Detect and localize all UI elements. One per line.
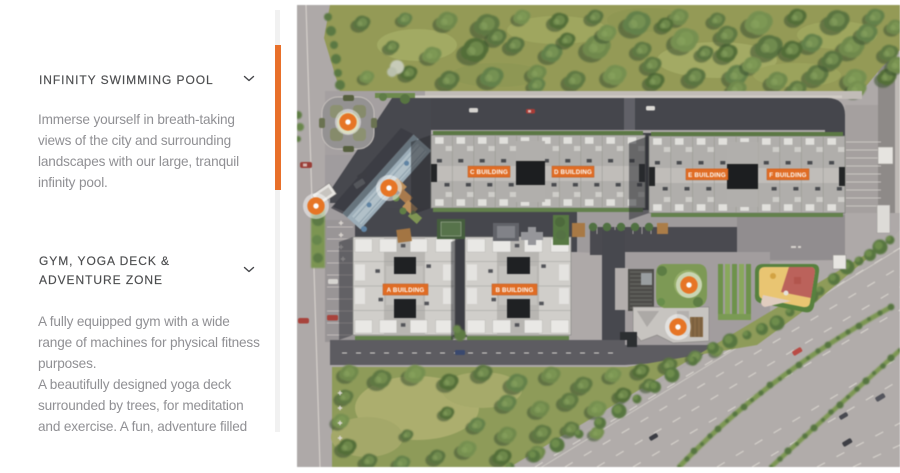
svg-text:D BUILDING: D BUILDING [554,169,592,176]
svg-text:A BUILDING: A BUILDING [387,287,425,294]
svg-text:F BUILDING: F BUILDING [769,172,806,179]
svg-text:E BUILDING: E BUILDING [688,172,726,179]
svg-text:B BUILDING: B BUILDING [495,287,533,294]
svg-text:C BUILDING: C BUILDING [470,169,508,176]
